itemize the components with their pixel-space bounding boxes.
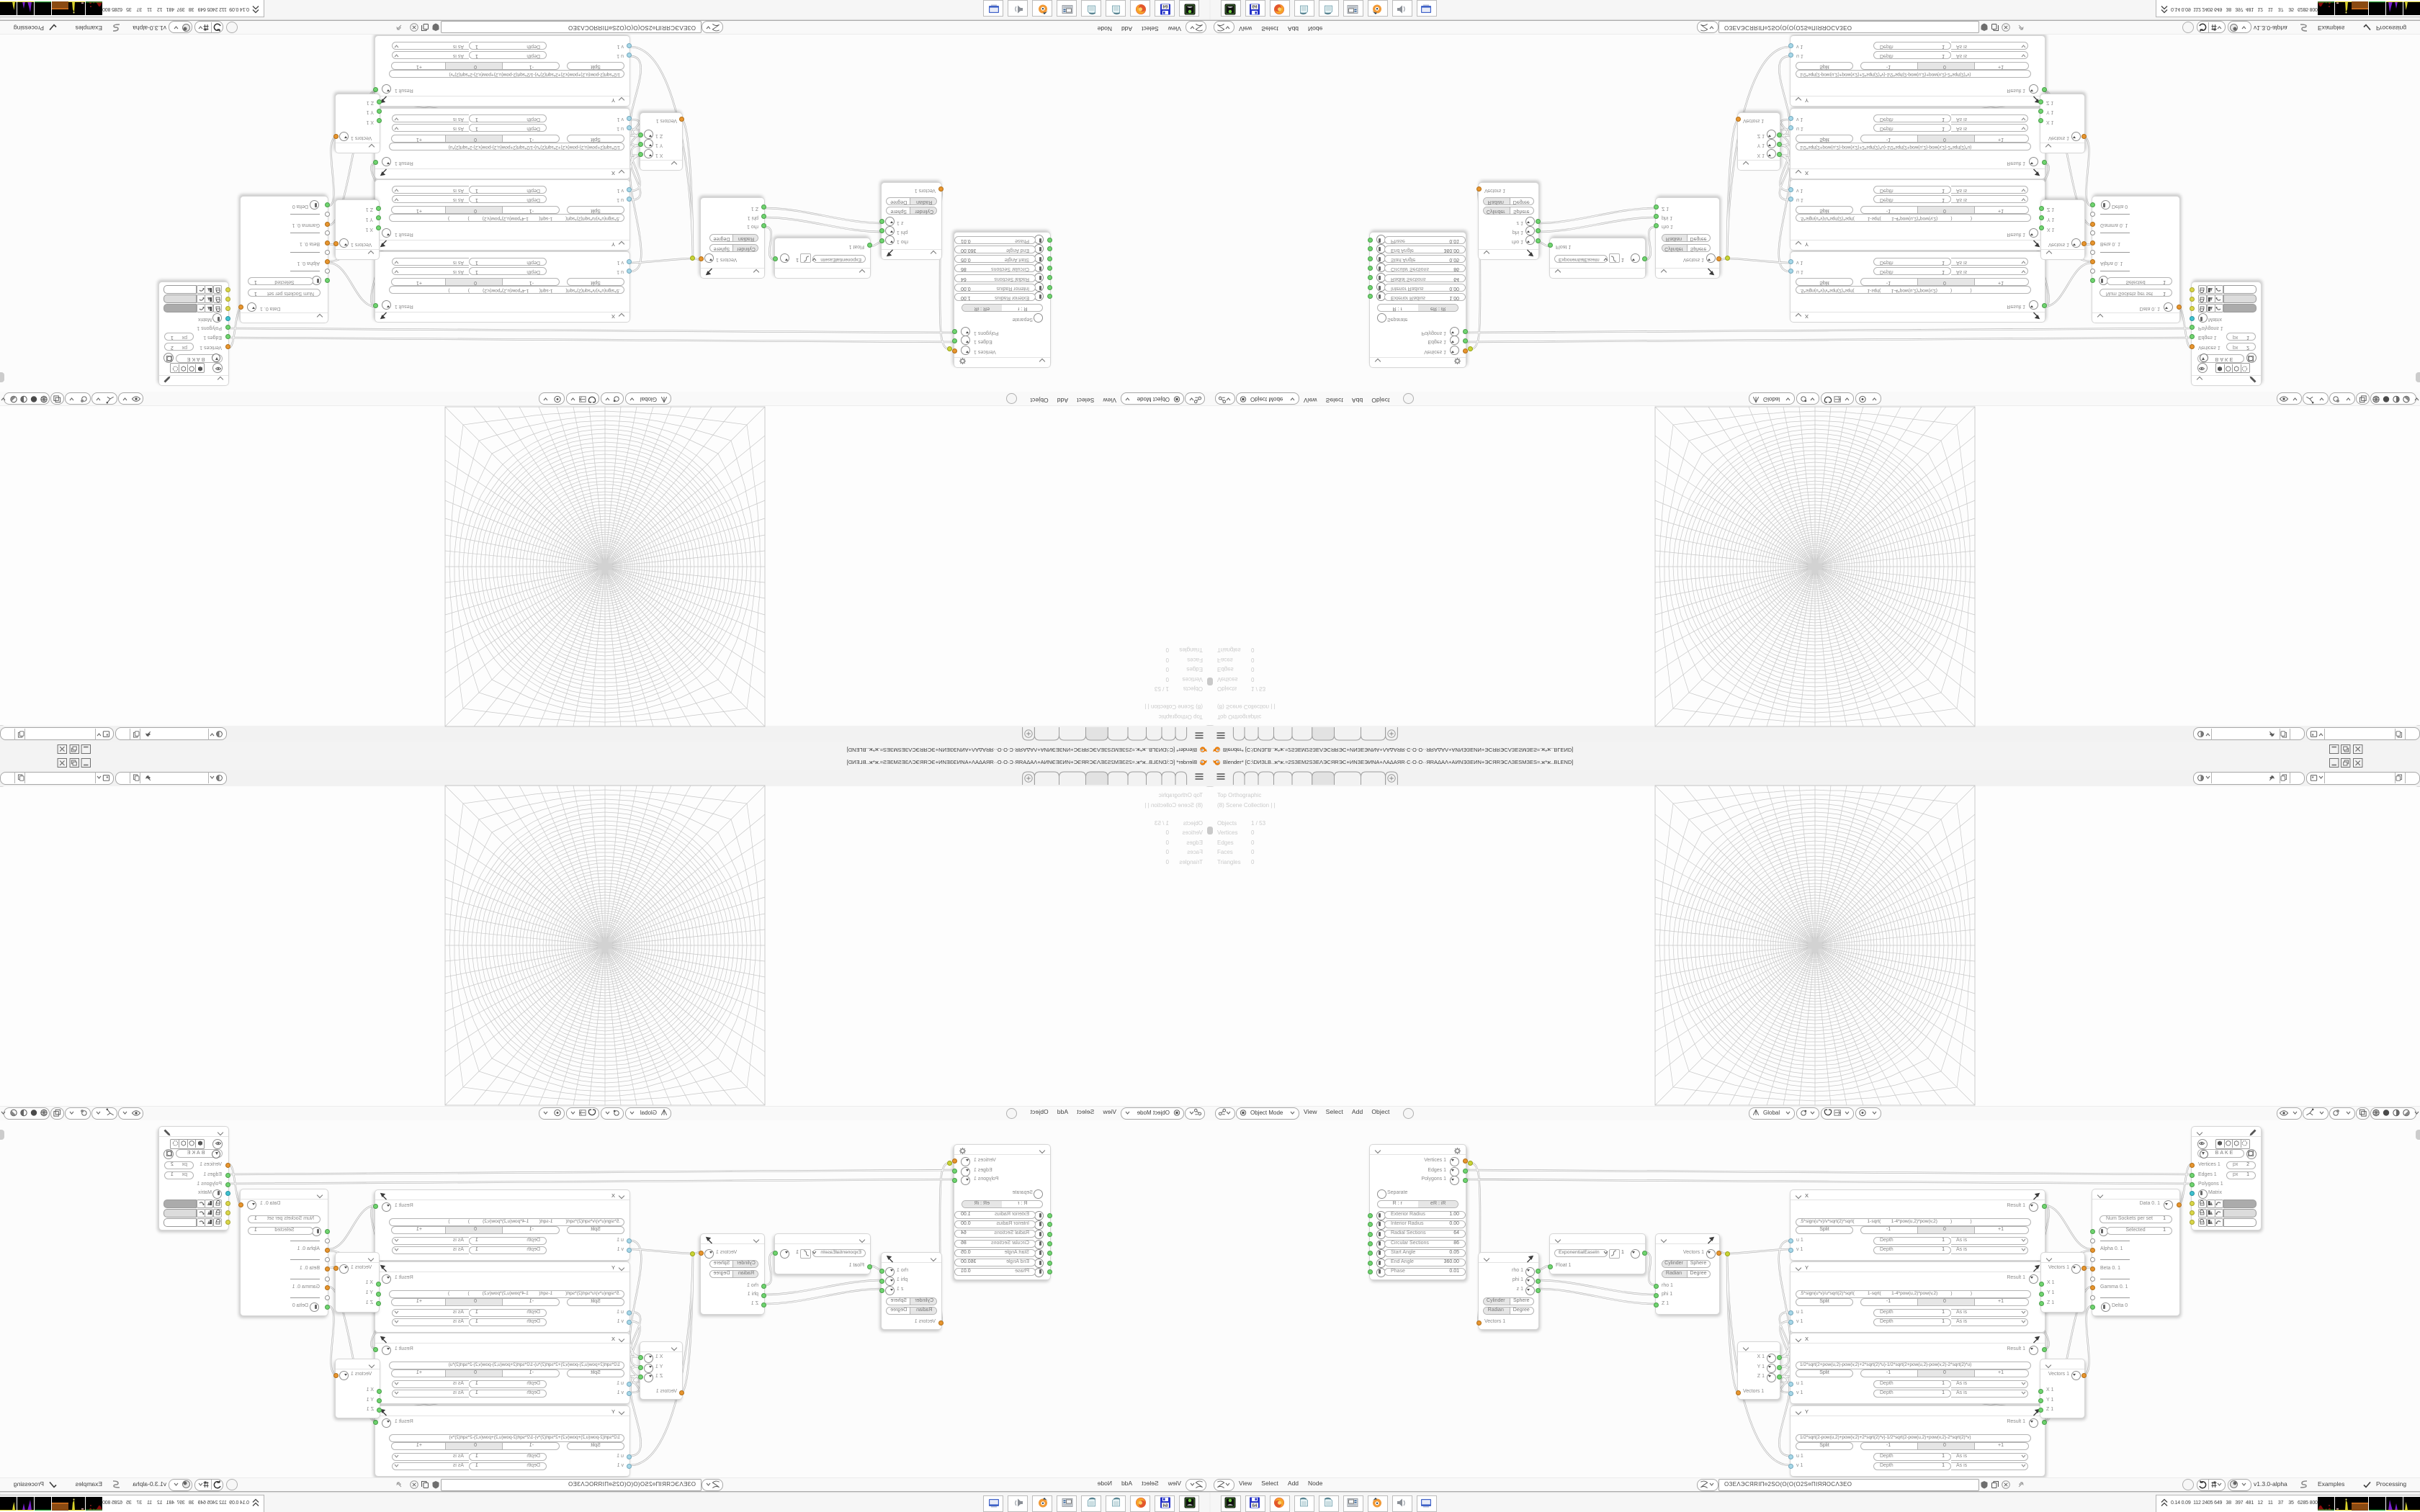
svg-text:64: 64 [1252, 4, 1258, 8]
svg-text:64: 64 [1252, 1504, 1258, 1508]
svg-text:64: 64 [1162, 4, 1168, 8]
svg-text:64: 64 [1162, 1504, 1168, 1508]
